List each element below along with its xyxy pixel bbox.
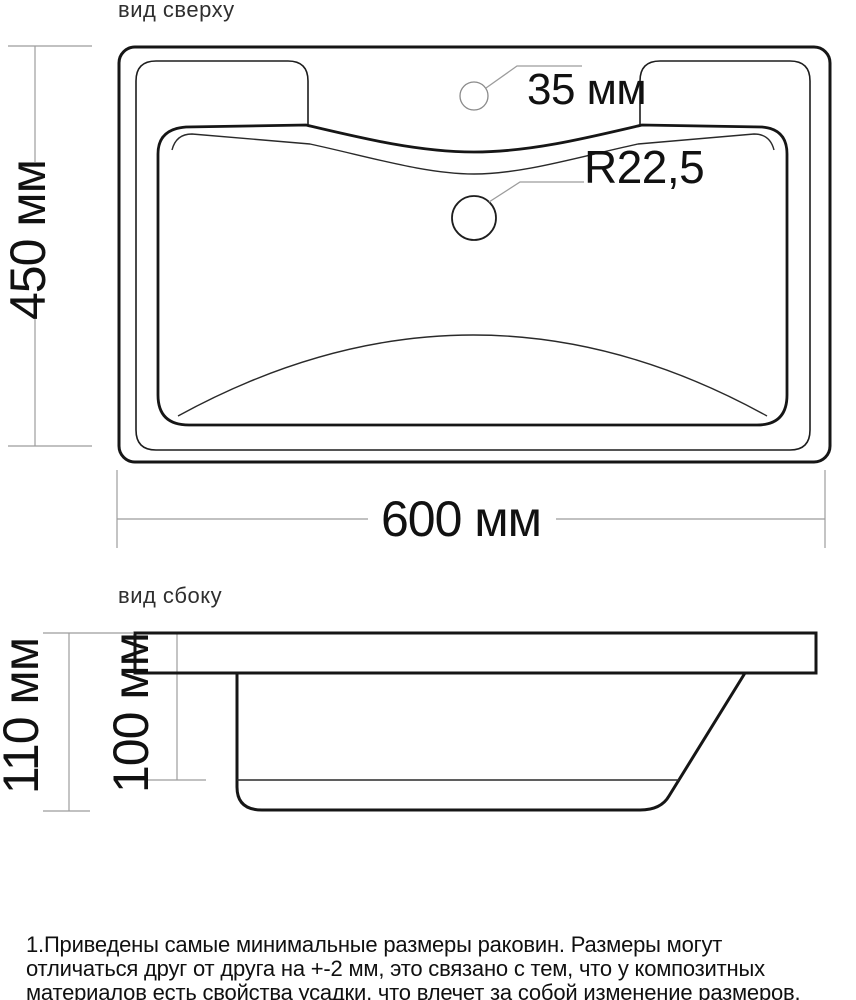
- drain-hole: [452, 196, 496, 240]
- footnote-line-1: 1.Приведены самые минимальные размеры ра…: [26, 933, 854, 957]
- faucet-hole: [460, 82, 488, 110]
- dim-450-label: 450 мм: [0, 160, 56, 320]
- dim-110-label: 110 мм: [0, 638, 49, 794]
- sink-inner-rim: [136, 61, 810, 450]
- sink-dimension-drawing: 450 мм 600 мм 35 мм R22,5: [0, 0, 856, 1000]
- footnote: 1.Приведены самые минимальные размеры ра…: [26, 933, 854, 1000]
- side-view: 110 мм 100 мм вид сбоку: [0, 583, 816, 811]
- dim-100-label: 100 мм: [103, 633, 159, 793]
- rim-profile: [135, 633, 816, 673]
- top-view: 450 мм 600 мм 35 мм R22,5: [0, 0, 830, 548]
- basin-floor-arc: [178, 335, 767, 416]
- sink-outer-edge: [119, 47, 830, 462]
- drawing-canvas: 450 мм 600 мм 35 мм R22,5: [0, 0, 856, 1000]
- side-view-title: вид сбоку: [118, 583, 222, 608]
- faucet-hole-label: 35 мм: [527, 65, 646, 114]
- drain-leader-line: [489, 182, 584, 202]
- footnote-line-2: отличаться друг от друга на +-2 мм, это …: [26, 957, 854, 981]
- basin-profile: [237, 673, 745, 810]
- top-view-title: вид сверху: [118, 0, 235, 22]
- drain-radius-label: R22,5: [584, 141, 704, 193]
- footnote-line-3: материалов есть свойства усадки, что вле…: [26, 981, 854, 1000]
- dim-600-label: 600 мм: [381, 491, 541, 547]
